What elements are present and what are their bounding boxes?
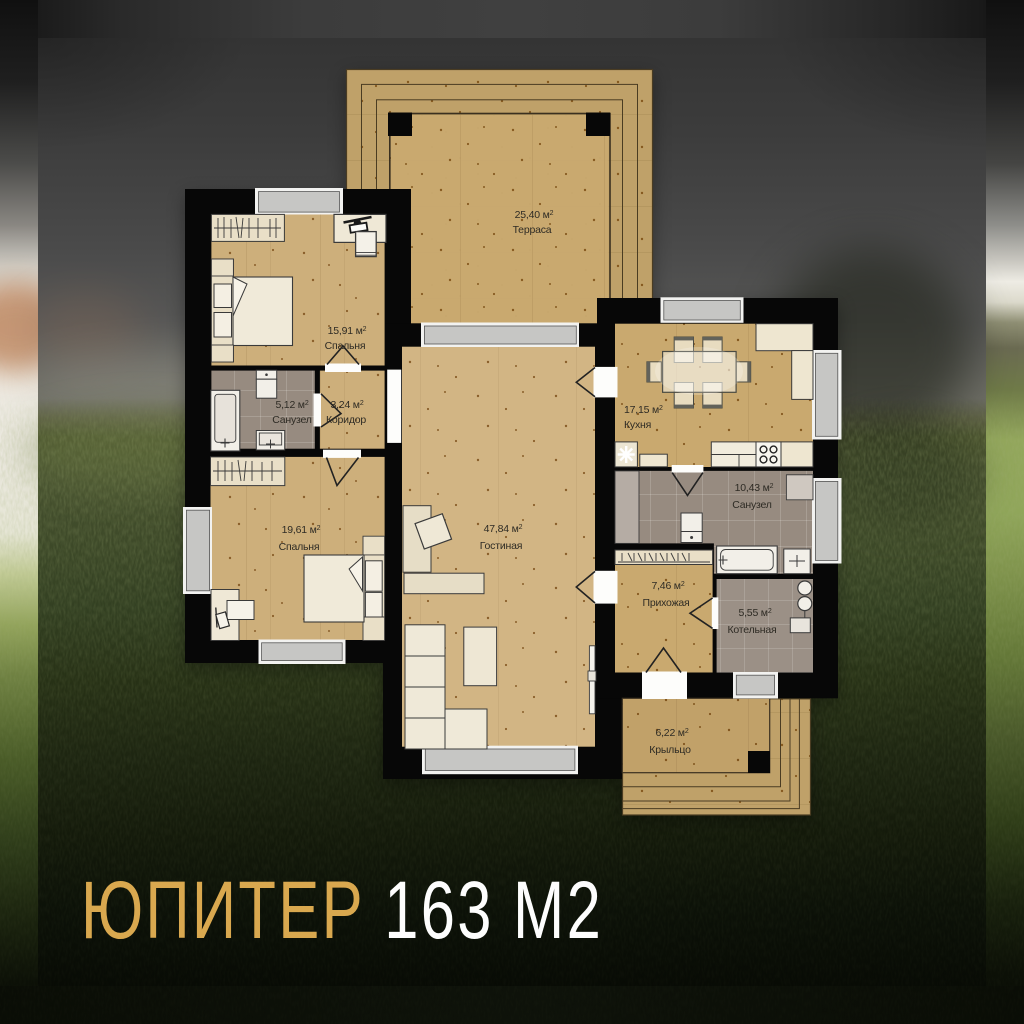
svg-text:Спальня: Спальня bbox=[325, 340, 366, 352]
svg-text:5,12 м2: 5,12 м2 bbox=[275, 399, 308, 411]
svg-text:Терраса: Терраса bbox=[513, 224, 552, 236]
svg-text:Санузел: Санузел bbox=[272, 414, 312, 426]
svg-text:17,15 м2: 17,15 м2 bbox=[624, 404, 663, 416]
svg-text:5,55 м2: 5,55 м2 bbox=[738, 607, 771, 619]
svg-text:Прихожая: Прихожая bbox=[642, 597, 689, 609]
svg-text:15,91 м2: 15,91 м2 bbox=[328, 325, 367, 337]
svg-text:19,61 м2: 19,61 м2 bbox=[282, 524, 321, 536]
svg-text:Гостиная: Гостиная bbox=[480, 540, 522, 552]
svg-text:25,40 м2: 25,40 м2 bbox=[515, 209, 554, 221]
svg-text:Кухня: Кухня bbox=[624, 419, 651, 431]
svg-text:6,22 м2: 6,22 м2 bbox=[655, 727, 688, 739]
svg-text:Спальня: Спальня bbox=[279, 541, 320, 553]
svg-text:Коридор: Коридор bbox=[326, 414, 366, 426]
svg-text:Санузел: Санузел bbox=[732, 499, 772, 511]
svg-text:47,84 м2: 47,84 м2 bbox=[484, 523, 523, 535]
svg-text:3,24 м2: 3,24 м2 bbox=[330, 399, 363, 411]
svg-text:10,43 м2: 10,43 м2 bbox=[735, 482, 774, 494]
svg-text:7,46 м2: 7,46 м2 bbox=[651, 580, 684, 592]
svg-text:Крыльцо: Крыльцо bbox=[649, 744, 691, 756]
svg-text:Котельная: Котельная bbox=[727, 624, 776, 636]
